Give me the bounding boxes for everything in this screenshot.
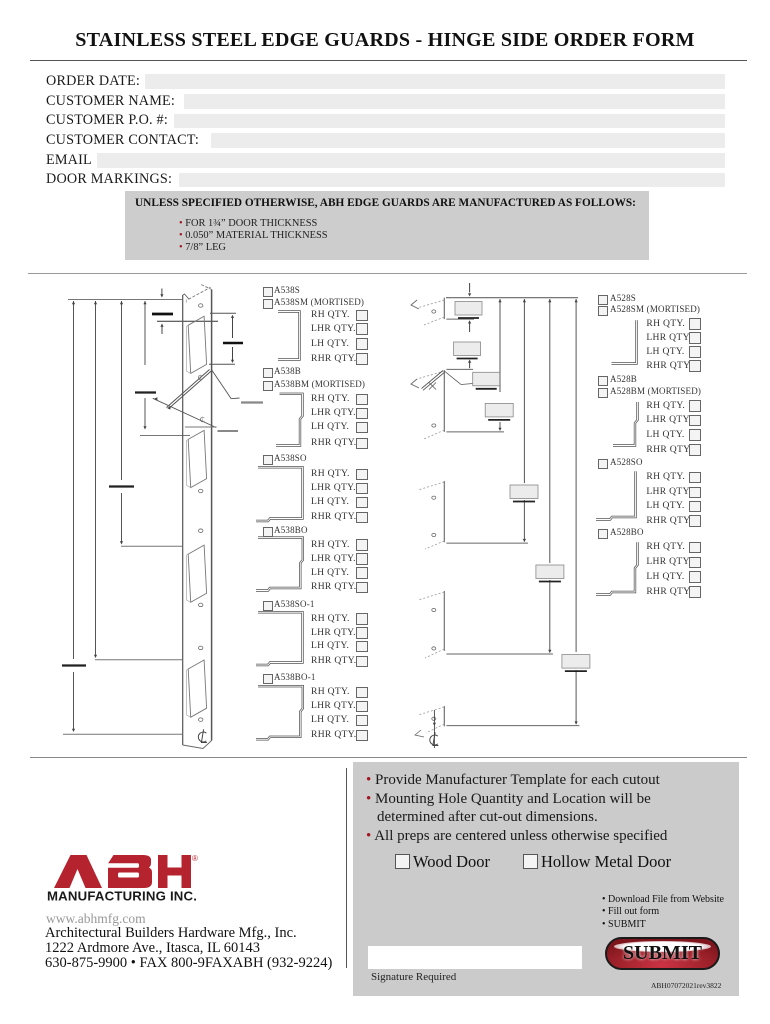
svg-text:MANUFACTURING INC.: MANUFACTURING INC. [47, 889, 197, 904]
svg-text:®: ® [192, 854, 198, 863]
